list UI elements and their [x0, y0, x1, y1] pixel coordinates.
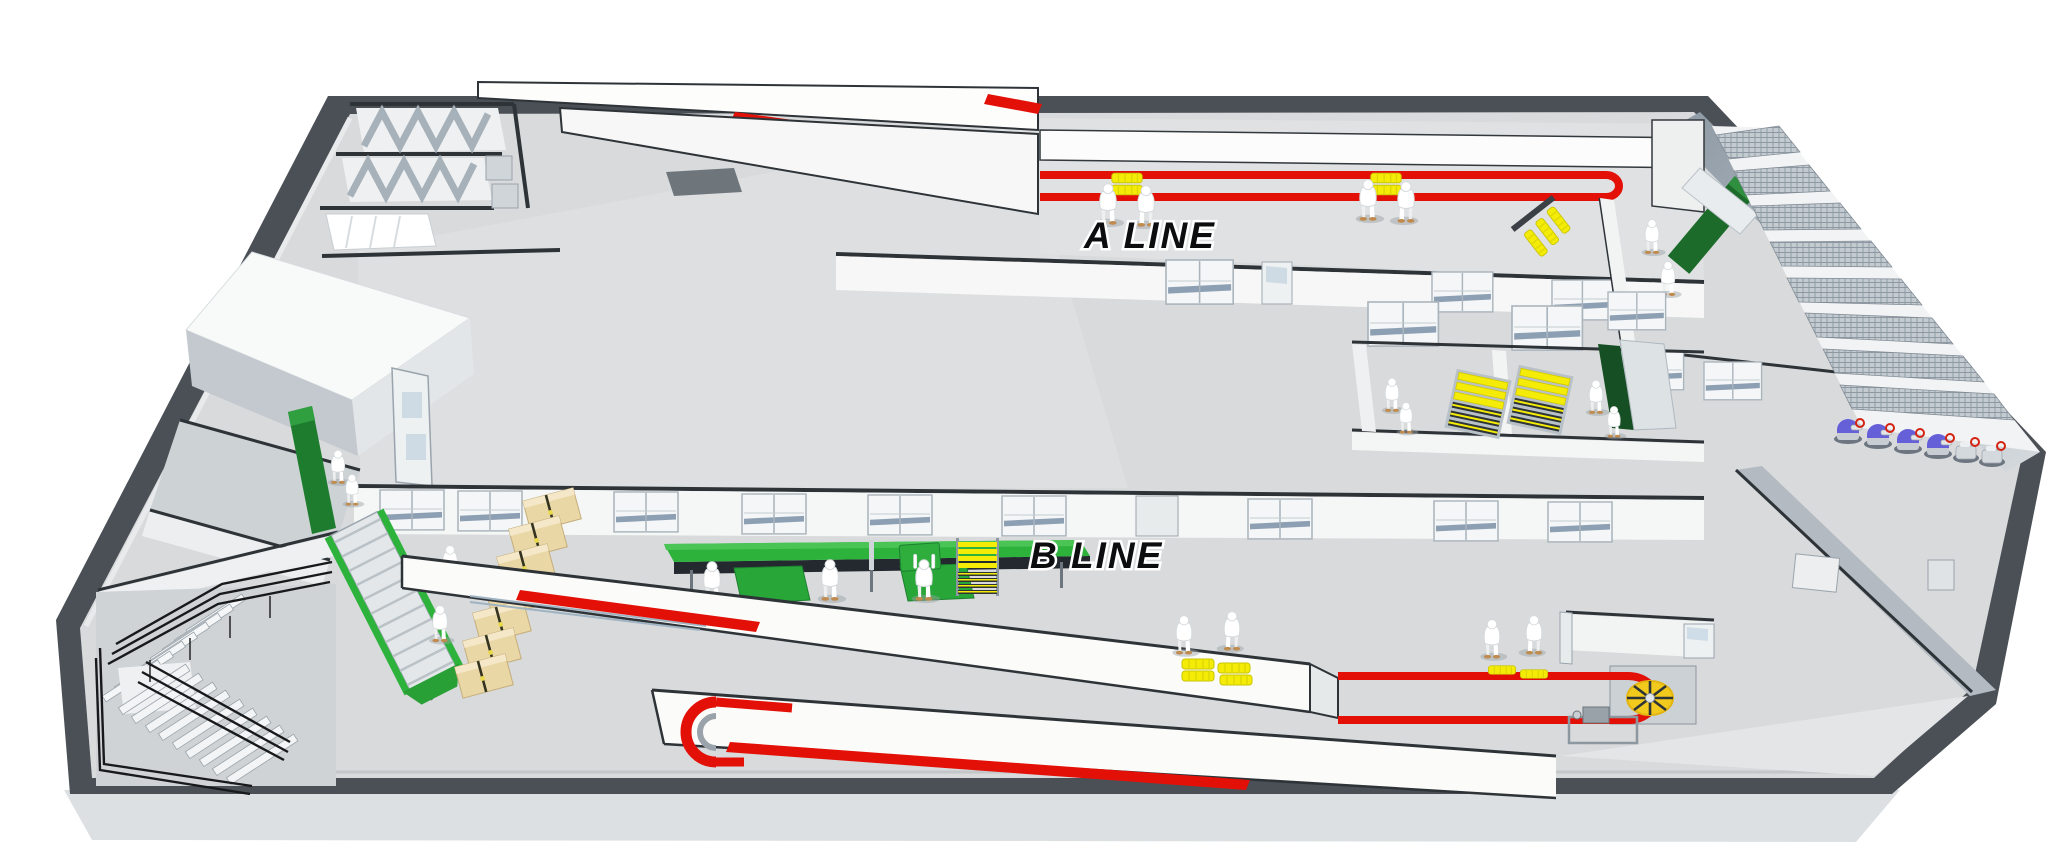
- a-line-label: A LINE: [1083, 215, 1216, 256]
- cabinet: [486, 156, 512, 180]
- cabinet: [492, 184, 518, 208]
- building-slab: [64, 790, 1900, 842]
- window: [402, 392, 422, 418]
- shelf-unit: [1512, 306, 1582, 350]
- tray: [1112, 173, 1142, 183]
- door: [1136, 496, 1178, 536]
- pass-through-window: [1166, 260, 1233, 304]
- white-counter: [326, 214, 436, 250]
- small-table: [1792, 554, 1839, 592]
- pass-through-window: [1434, 501, 1498, 541]
- tray: [1182, 659, 1214, 669]
- tray: [1220, 675, 1252, 685]
- staircase: [96, 562, 336, 794]
- small-frame: [1928, 560, 1954, 590]
- tray: [1182, 671, 1214, 681]
- floor-hatch: [666, 168, 742, 196]
- window: [406, 434, 426, 460]
- shelf-unit: [1368, 302, 1438, 346]
- pass-through-window: [1432, 272, 1493, 312]
- shelf-unit: [1608, 292, 1666, 330]
- pass-through-window: [1548, 502, 1612, 542]
- pass-through-window: [1248, 499, 1312, 539]
- tray: [1520, 670, 1547, 679]
- pass-through-window: [868, 495, 932, 535]
- tray: [1112, 185, 1142, 195]
- b-line-label: B LINE: [1030, 535, 1163, 576]
- pass-through-window: [458, 491, 522, 531]
- tray: [1371, 173, 1401, 183]
- tray: [1218, 663, 1250, 673]
- tray-rack: [956, 538, 999, 596]
- pass-through-window: [614, 492, 678, 532]
- pass-through-window: [1704, 362, 1762, 400]
- tray: [1488, 666, 1515, 675]
- factory-floor-render: A LINE: [0, 0, 2048, 868]
- pass-through-window: [742, 494, 806, 534]
- pass-through-window: [1002, 496, 1066, 536]
